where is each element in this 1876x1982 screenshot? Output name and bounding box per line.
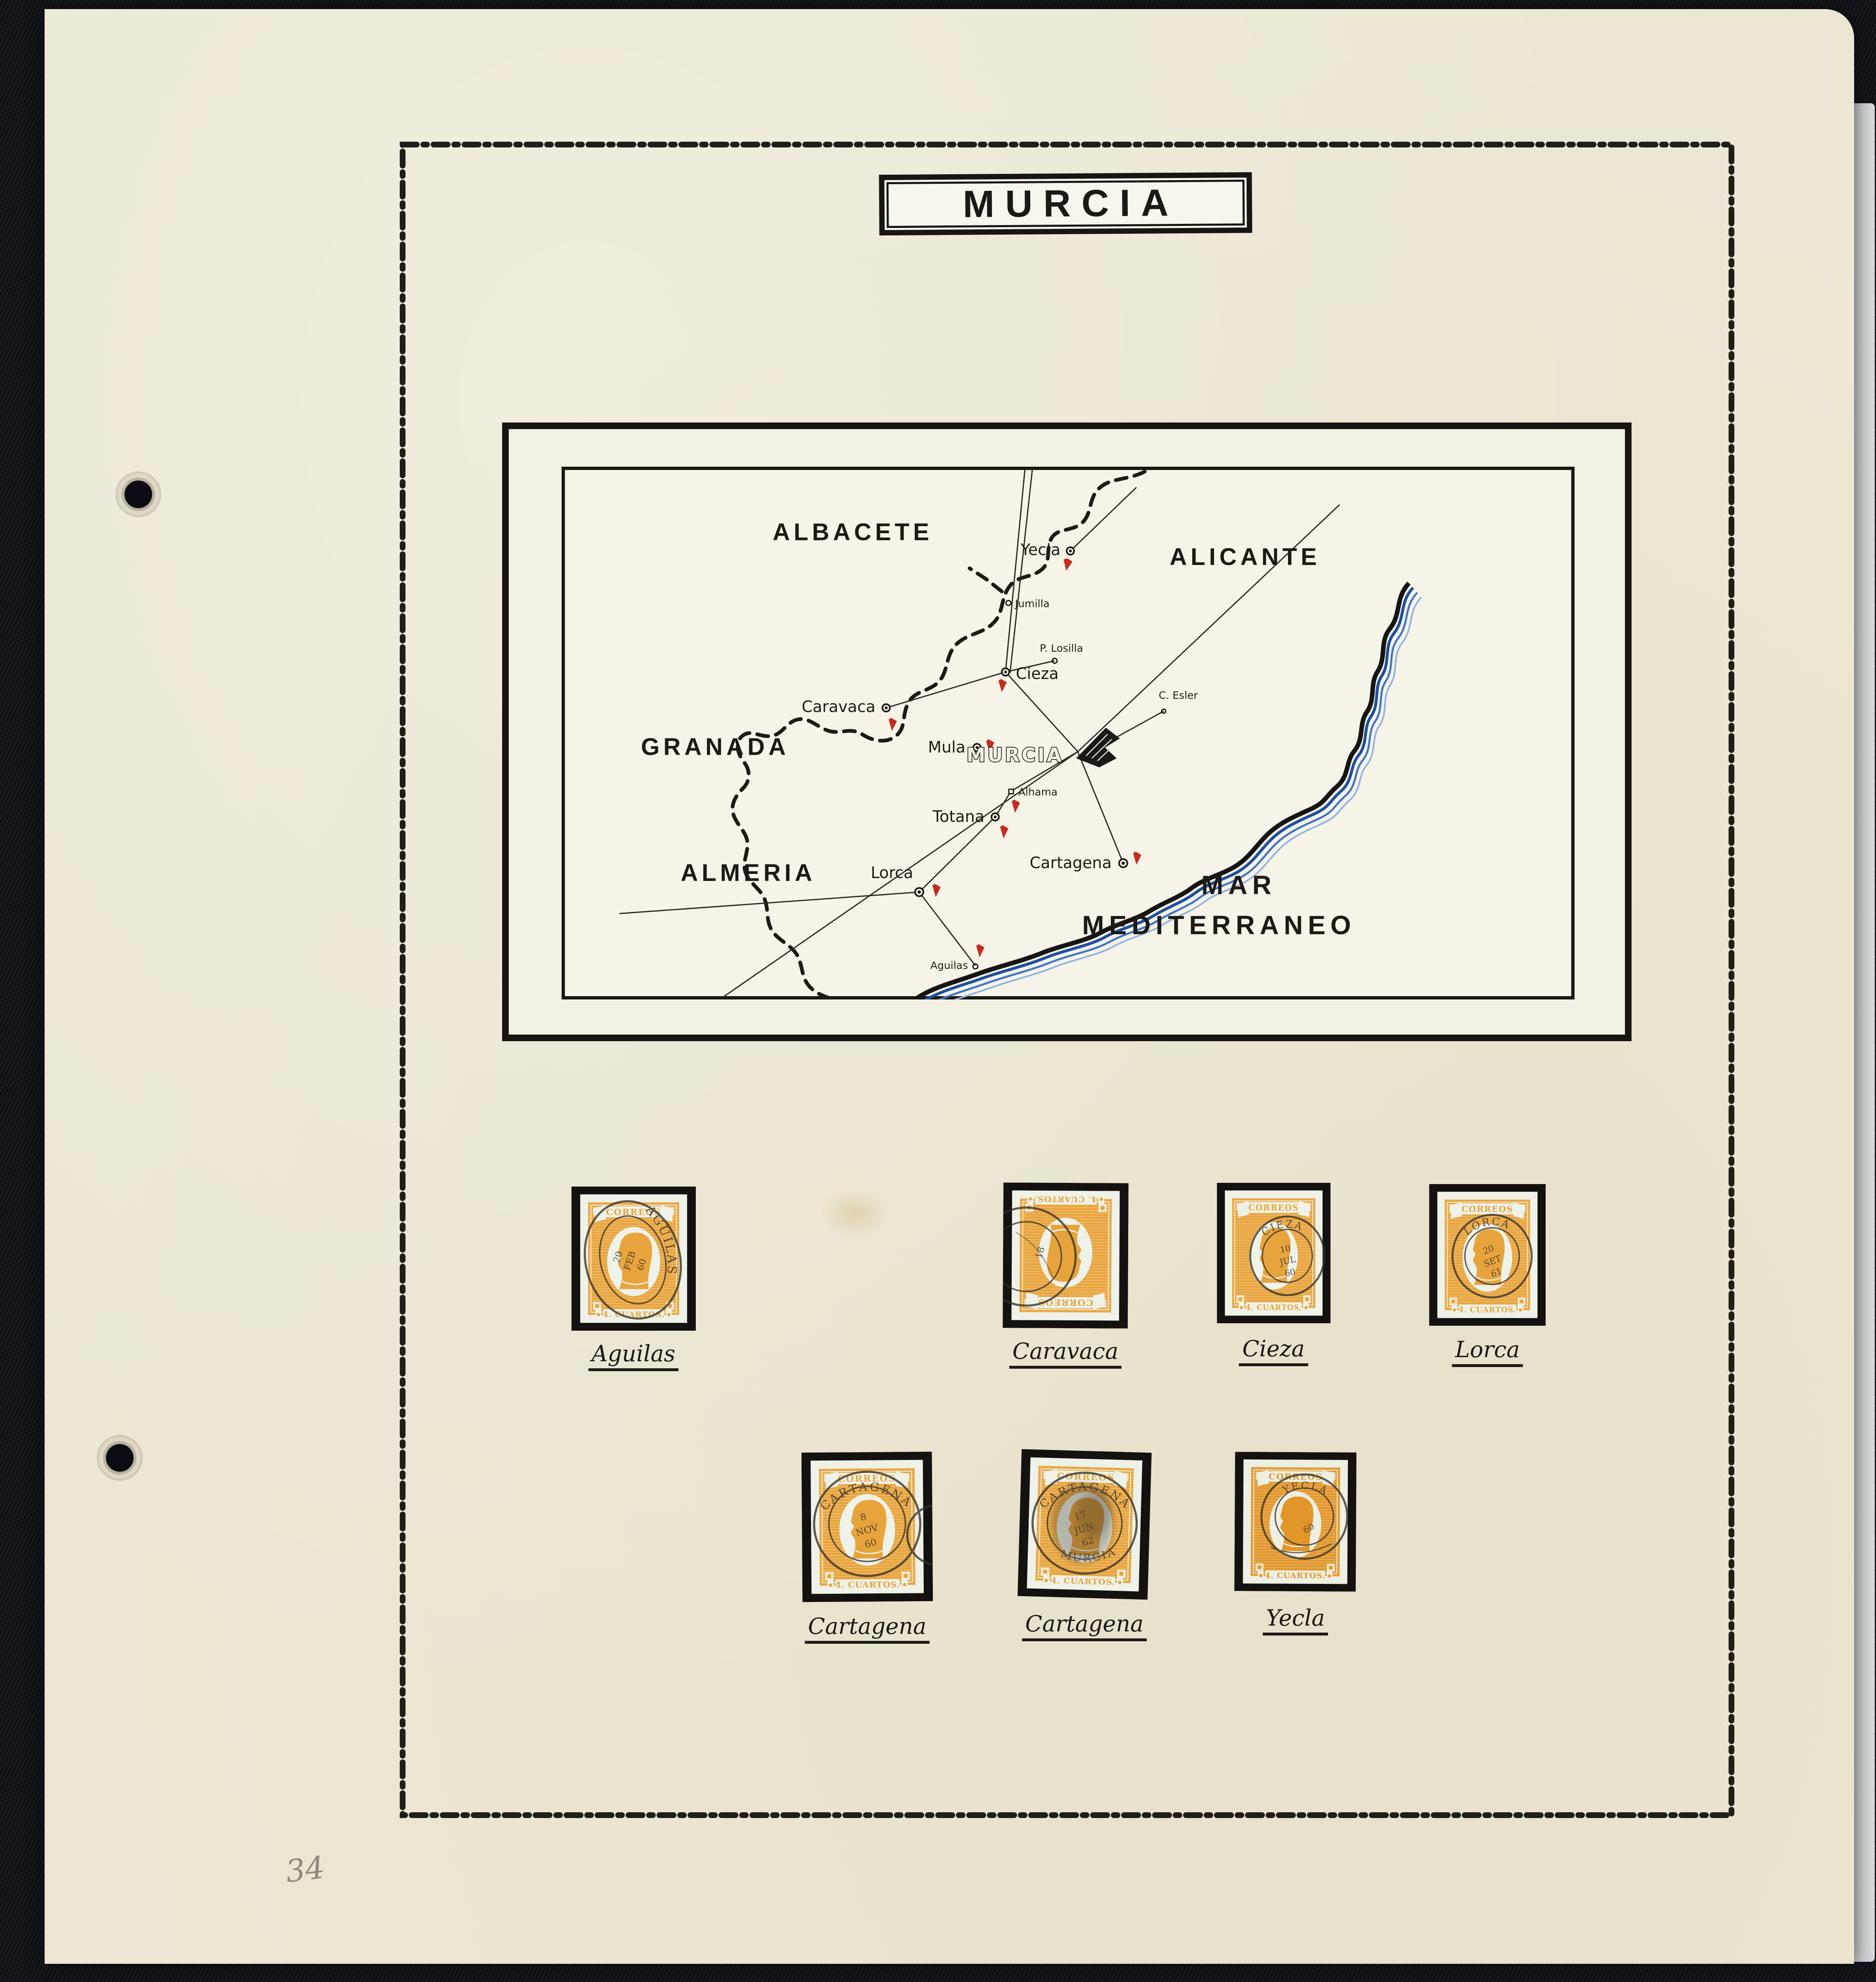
caption-lorca: Lorca bbox=[1405, 1336, 1570, 1362]
title-frame: MURCIA bbox=[887, 180, 1245, 228]
stamp-denomination: 4. CUARTOS. bbox=[1459, 1306, 1516, 1314]
map-city-cartagena: Cartagena bbox=[1030, 854, 1112, 872]
caption-caravaca: Caravaca bbox=[983, 1338, 1148, 1364]
map-town-losilla: P. Losilla bbox=[1040, 642, 1083, 654]
page-title: MURCIA bbox=[952, 181, 1179, 226]
caption-cartagena-2: Cartagena bbox=[1002, 1611, 1167, 1637]
map-drawing: ALBACETE ALICANTE GRANADA ALMERIA MAR ME… bbox=[562, 467, 1575, 999]
map-city-mula: Mula bbox=[928, 738, 965, 756]
map-city-totana: Totana bbox=[932, 807, 984, 826]
caption-cartagena-1: Cartagena bbox=[785, 1613, 950, 1639]
scanned-album-photo: MURCIA bbox=[0, 0, 1876, 1982]
stamp-inscription: CORREOS bbox=[1269, 1472, 1323, 1481]
stamp-cieza: CORREOS 4. CUARTOS. CIEZA 10 JUL 60 bbox=[1217, 1183, 1331, 1323]
paper-stain bbox=[820, 1189, 890, 1238]
map-city-cieza: Cieza bbox=[1016, 665, 1059, 683]
map-city-yecla: Yecla bbox=[1020, 541, 1060, 559]
postmark-lorca: LORCA 20 SET 61 bbox=[1452, 1215, 1532, 1297]
title-box: MURCIA bbox=[879, 172, 1252, 235]
map-capital-label: MURCIA bbox=[966, 744, 1063, 766]
stamp-denomination: 4. CUARTOS. bbox=[835, 1579, 900, 1590]
caption-cieza: Cieza bbox=[1191, 1336, 1356, 1362]
page-number: 34 bbox=[284, 1850, 327, 1890]
map-town-esler: C. Esler bbox=[1159, 689, 1198, 701]
stamp-denomination: 4. CUARTOS. bbox=[1035, 1194, 1097, 1204]
map-town-aguilas: Aguilas bbox=[930, 959, 968, 971]
stamp-cartagena-1: CORREOS 4. CUARTOS. CARTAGENA 8 NOV 60 bbox=[802, 1452, 933, 1602]
map-town-alhama: Alhama bbox=[1018, 786, 1058, 798]
map-city-lorca: Lorca bbox=[871, 864, 913, 882]
map-town-jumilla: Jumilla bbox=[1014, 598, 1050, 610]
punch-hole-bottom bbox=[95, 1434, 144, 1482]
map-sea-label-line1: MAR bbox=[1201, 870, 1276, 900]
punch-hole-top bbox=[114, 470, 163, 519]
stamp-inscription: CORREOS bbox=[1461, 1204, 1513, 1214]
stamp-inscription: CORREOS bbox=[1248, 1202, 1299, 1213]
map-region-label-almeria: ALMERIA bbox=[681, 859, 816, 886]
caption-yecla: Yecla bbox=[1213, 1605, 1378, 1631]
map-panel: ALBACETE ALICANTE GRANADA ALMERIA MAR ME… bbox=[502, 423, 1632, 1041]
stamp-denomination: 4. CUARTOS. bbox=[1245, 1303, 1302, 1312]
stamp-cartagena-2: CORREOS 4. CUARTOS. CARTAGENA MURCIA 17 bbox=[1017, 1449, 1152, 1600]
album-page: MURCIA bbox=[45, 9, 1854, 1964]
stamp-lorca: CORREOS 4. CUARTOS. LORCA 20 SET 61 bbox=[1429, 1184, 1546, 1326]
stamp-aguilas: CORREOS 4. CUARTOS. AGUILAS 20 FEB 60 bbox=[572, 1187, 696, 1331]
map-region-label-alicante: ALICANTE bbox=[1169, 544, 1320, 570]
map-city-caravaca: Caravaca bbox=[802, 698, 875, 716]
stamp-yecla: CORREOS 4. CUARTOS. YECLA 60 bbox=[1234, 1452, 1357, 1592]
map-region-label-albacete: ALBACETE bbox=[773, 519, 933, 546]
map-region-label-granada: GRANADA bbox=[641, 733, 789, 760]
caption-aguilas: Aguilas bbox=[551, 1341, 716, 1367]
stamp-caravaca: CORREOS 4. CUARTOS. 18 bbox=[1003, 1182, 1129, 1329]
stamp-denomination: 4. CUARTOS. bbox=[1265, 1571, 1325, 1581]
stamp-denomination: 4. CUARTOS. bbox=[1051, 1576, 1115, 1587]
map-sea-label-line2: MEDITERRANEO bbox=[1082, 910, 1356, 940]
postmark-cartagena-2: CARTAGENA MURCIA 17 JUN 62 bbox=[1031, 1471, 1138, 1575]
